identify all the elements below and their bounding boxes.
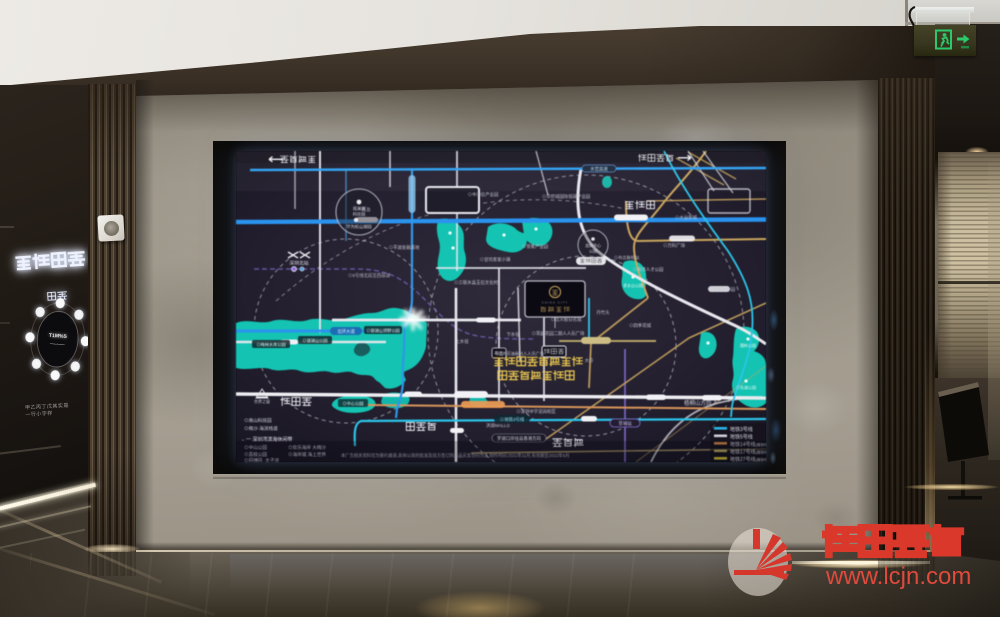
svg-text:丹竹头: 丹竹头 <box>596 309 610 316</box>
svg-text:⊙梅林水库公园: ⊙梅林水库公园 <box>256 341 285 348</box>
svg-text:⊙中心公园: ⊙中心公园 <box>343 400 364 407</box>
svg-text:⊙地铁3号线: ⊙地铁3号线 <box>500 416 525 423</box>
svg-text:⊙雪象产业园: ⊙雪象产业园 <box>522 243 549 250</box>
svg-text:大芬: 大芬 <box>585 357 594 364</box>
svg-text:罗湖口岸往返香港方向: 罗湖口岸往返香港方向 <box>497 435 541 442</box>
svg-text:⊙四季花城: ⊙四季花城 <box>629 322 652 329</box>
svg-text:龙岗中心: 龙岗中心 <box>585 242 601 248</box>
svg-text:⊙梅沙·海滨栈道: ⊙梅沙·海滨栈道 <box>244 425 278 432</box>
svg-text:地铁3号线: 地铁3号线 <box>730 426 753 433</box>
svg-text:⊙中海信产业园: ⊙中海信产业园 <box>468 191 499 198</box>
svg-text:求水山公园: 求水山公园 <box>623 282 643 288</box>
svg-text:⊙布吉联检站: ⊙布吉联检站 <box>614 254 639 261</box>
svg-text:民治: 民治 <box>362 206 371 213</box>
svg-text:上水径: 上水径 <box>455 338 469 344</box>
svg-text:⊙甘坑客家小镇: ⊙甘坑客家小镇 <box>480 256 511 263</box>
svg-text:⊙深圳中学泥岗校区: ⊙深圳中学泥岗校区 <box>516 408 556 415</box>
svg-text:草埔站: 草埔站 <box>618 420 632 427</box>
svg-text:围岭公园: 围岭公园 <box>740 342 756 348</box>
svg-text:⊙李朗软件园: ⊙李朗软件园 <box>709 286 736 293</box>
svg-text:⊙华侨城国际低碳产业园: ⊙华侨城国际低碳产业园 <box>542 193 591 200</box>
svg-text:北环大道: 北环大道 <box>337 328 355 335</box>
svg-text:⊙三联水晶玉石文化村: ⊙三联水晶玉石文化村 <box>454 279 499 286</box>
svg-text:⊙大芬油画村人人乐广场: ⊙大芬油画村人人乐广场 <box>498 350 544 357</box>
svg-text:深圳北站: 深圳北站 <box>289 260 308 267</box>
svg-text:下水径: 下水径 <box>506 331 520 338</box>
svg-text:⊙南湾人才公园: ⊙南湾人才公园 <box>633 266 664 273</box>
svg-text:⊙9号线北延至西丽湖: ⊙9号线北延至西丽湖 <box>348 272 391 279</box>
svg-text:⊙荣超花园二期人人乐广场: ⊙荣超花园二期人人乐广场 <box>532 330 585 337</box>
svg-text:⊙万科广场: ⊙万科广场 <box>663 242 686 249</box>
svg-text:T1M%S: T1M%S <box>49 333 68 340</box>
svg-text:地铁5号线: 地铁5号线 <box>730 434 753 441</box>
svg-text:CHINA CITY: CHINA CITY <box>542 301 569 305</box>
svg-text:⊙信义假日名城: ⊙信义假日名城 <box>551 316 582 323</box>
svg-text:世界之窗: 世界之窗 <box>254 398 270 404</box>
svg-text:洪湖MALL⊙: 洪湖MALL⊙ <box>486 422 510 429</box>
svg-text:⊙平湖金融基地: ⊙平湖金融基地 <box>389 244 420 251</box>
svg-text:⊙南山科技园: ⊙南山科技园 <box>244 417 272 424</box>
svg-text:⊙银湖山郊野公园: ⊙银湖山郊野公园 <box>366 327 400 334</box>
svg-text:华为松山湖园: 华为松山湖园 <box>346 223 371 230</box>
svg-text:公园: 公园 <box>589 248 597 254</box>
svg-text:梧桐山方向↗: 梧桐山方向↗ <box>684 399 717 407</box>
svg-text:⊙银湖山公园: ⊙银湖山公园 <box>302 337 327 344</box>
svg-text:⊙东湖公园: ⊙东湖公园 <box>736 384 756 390</box>
svg-text:⊙大运新城: ⊙大运新城 <box>675 214 698 221</box>
